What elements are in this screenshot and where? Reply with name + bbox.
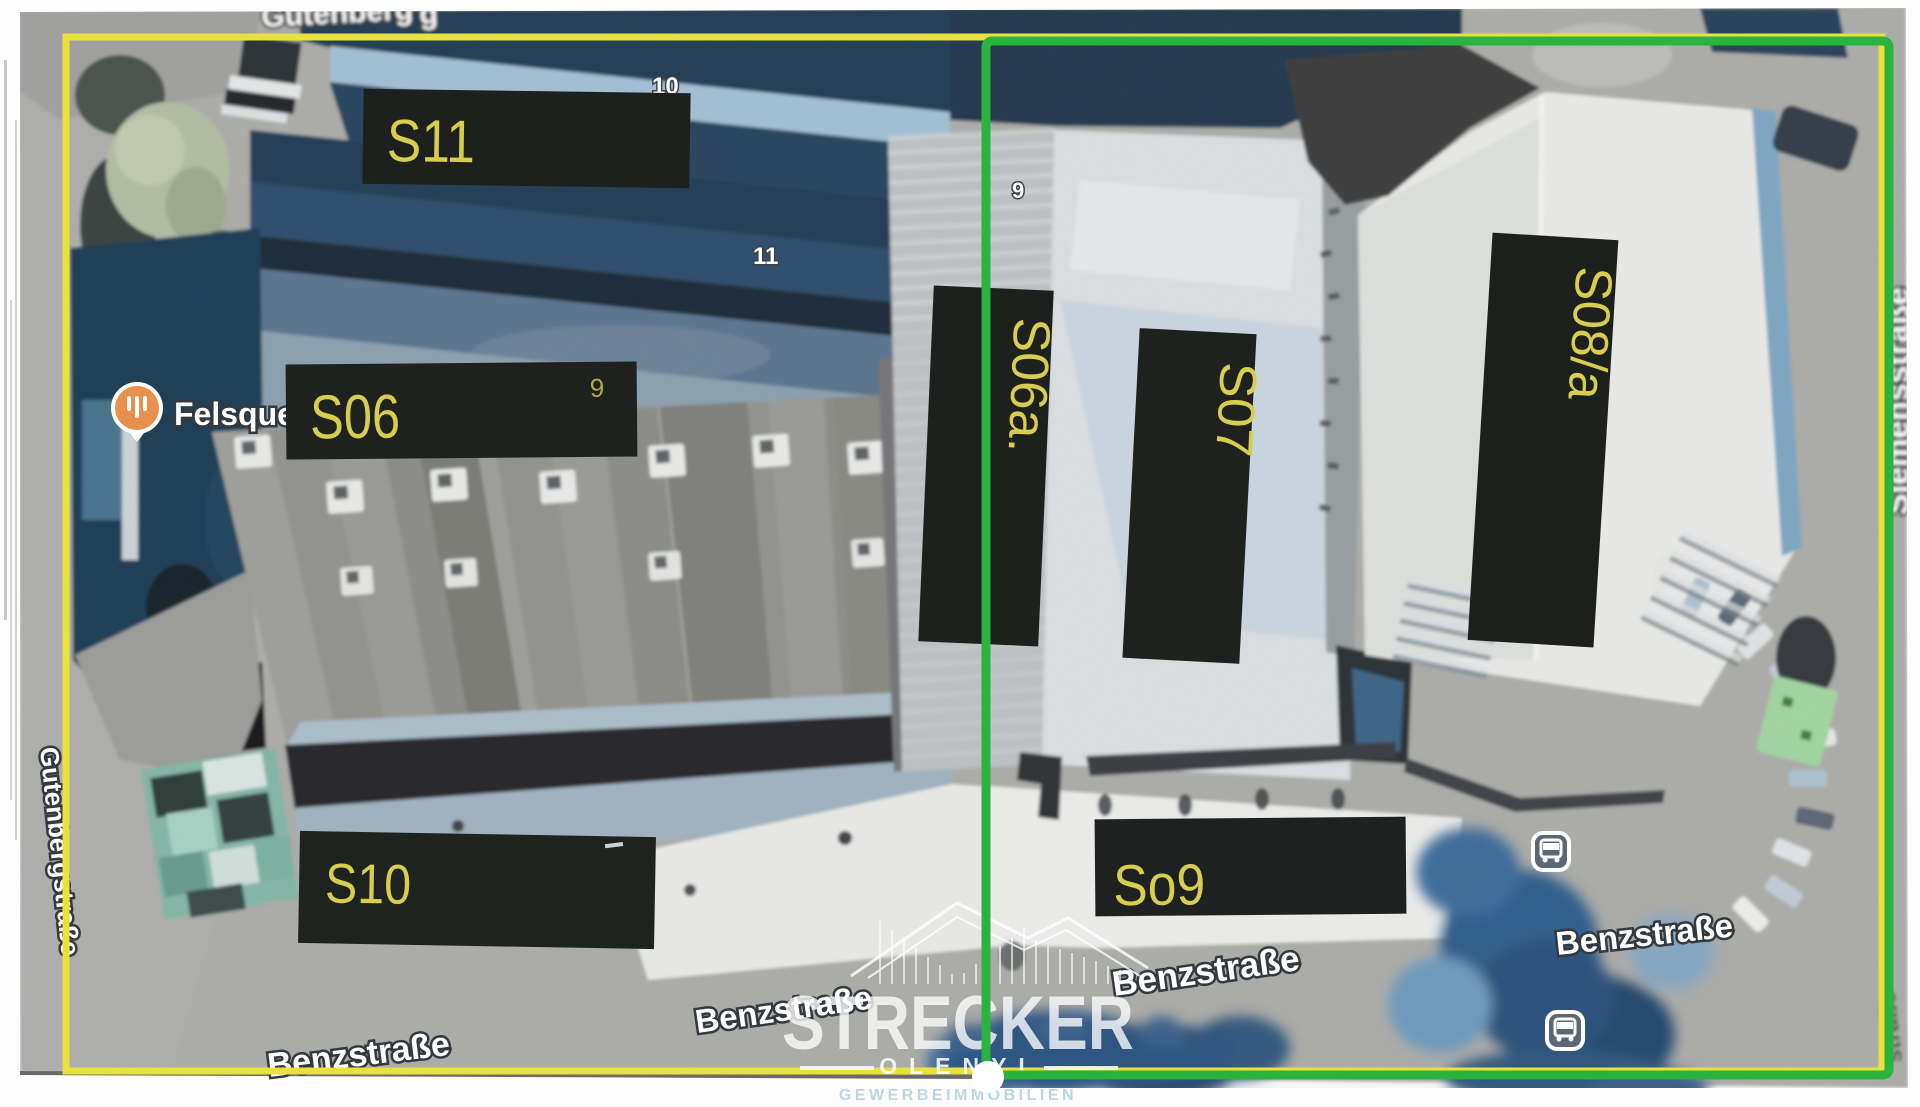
- svg-text:S11: S11: [386, 107, 475, 175]
- svg-text:9: 9: [590, 373, 605, 403]
- svg-text:S10: S10: [325, 851, 412, 915]
- svg-text:S06a.: S06a.: [997, 317, 1061, 454]
- svg-text:S06: S06: [310, 383, 401, 453]
- svg-text:S08/a: S08/a: [1557, 265, 1623, 401]
- svg-text:11: 11: [753, 243, 778, 270]
- svg-text:Felsquel: Felsquel: [174, 396, 304, 432]
- svg-text:GEWERBEIMMOBILIEN: GEWERBEIMMOBILIEN: [839, 1087, 1077, 1104]
- svg-text:So9: So9: [1113, 852, 1206, 918]
- svg-text:9: 9: [1012, 178, 1024, 203]
- svg-text:S07: S07: [1204, 361, 1267, 459]
